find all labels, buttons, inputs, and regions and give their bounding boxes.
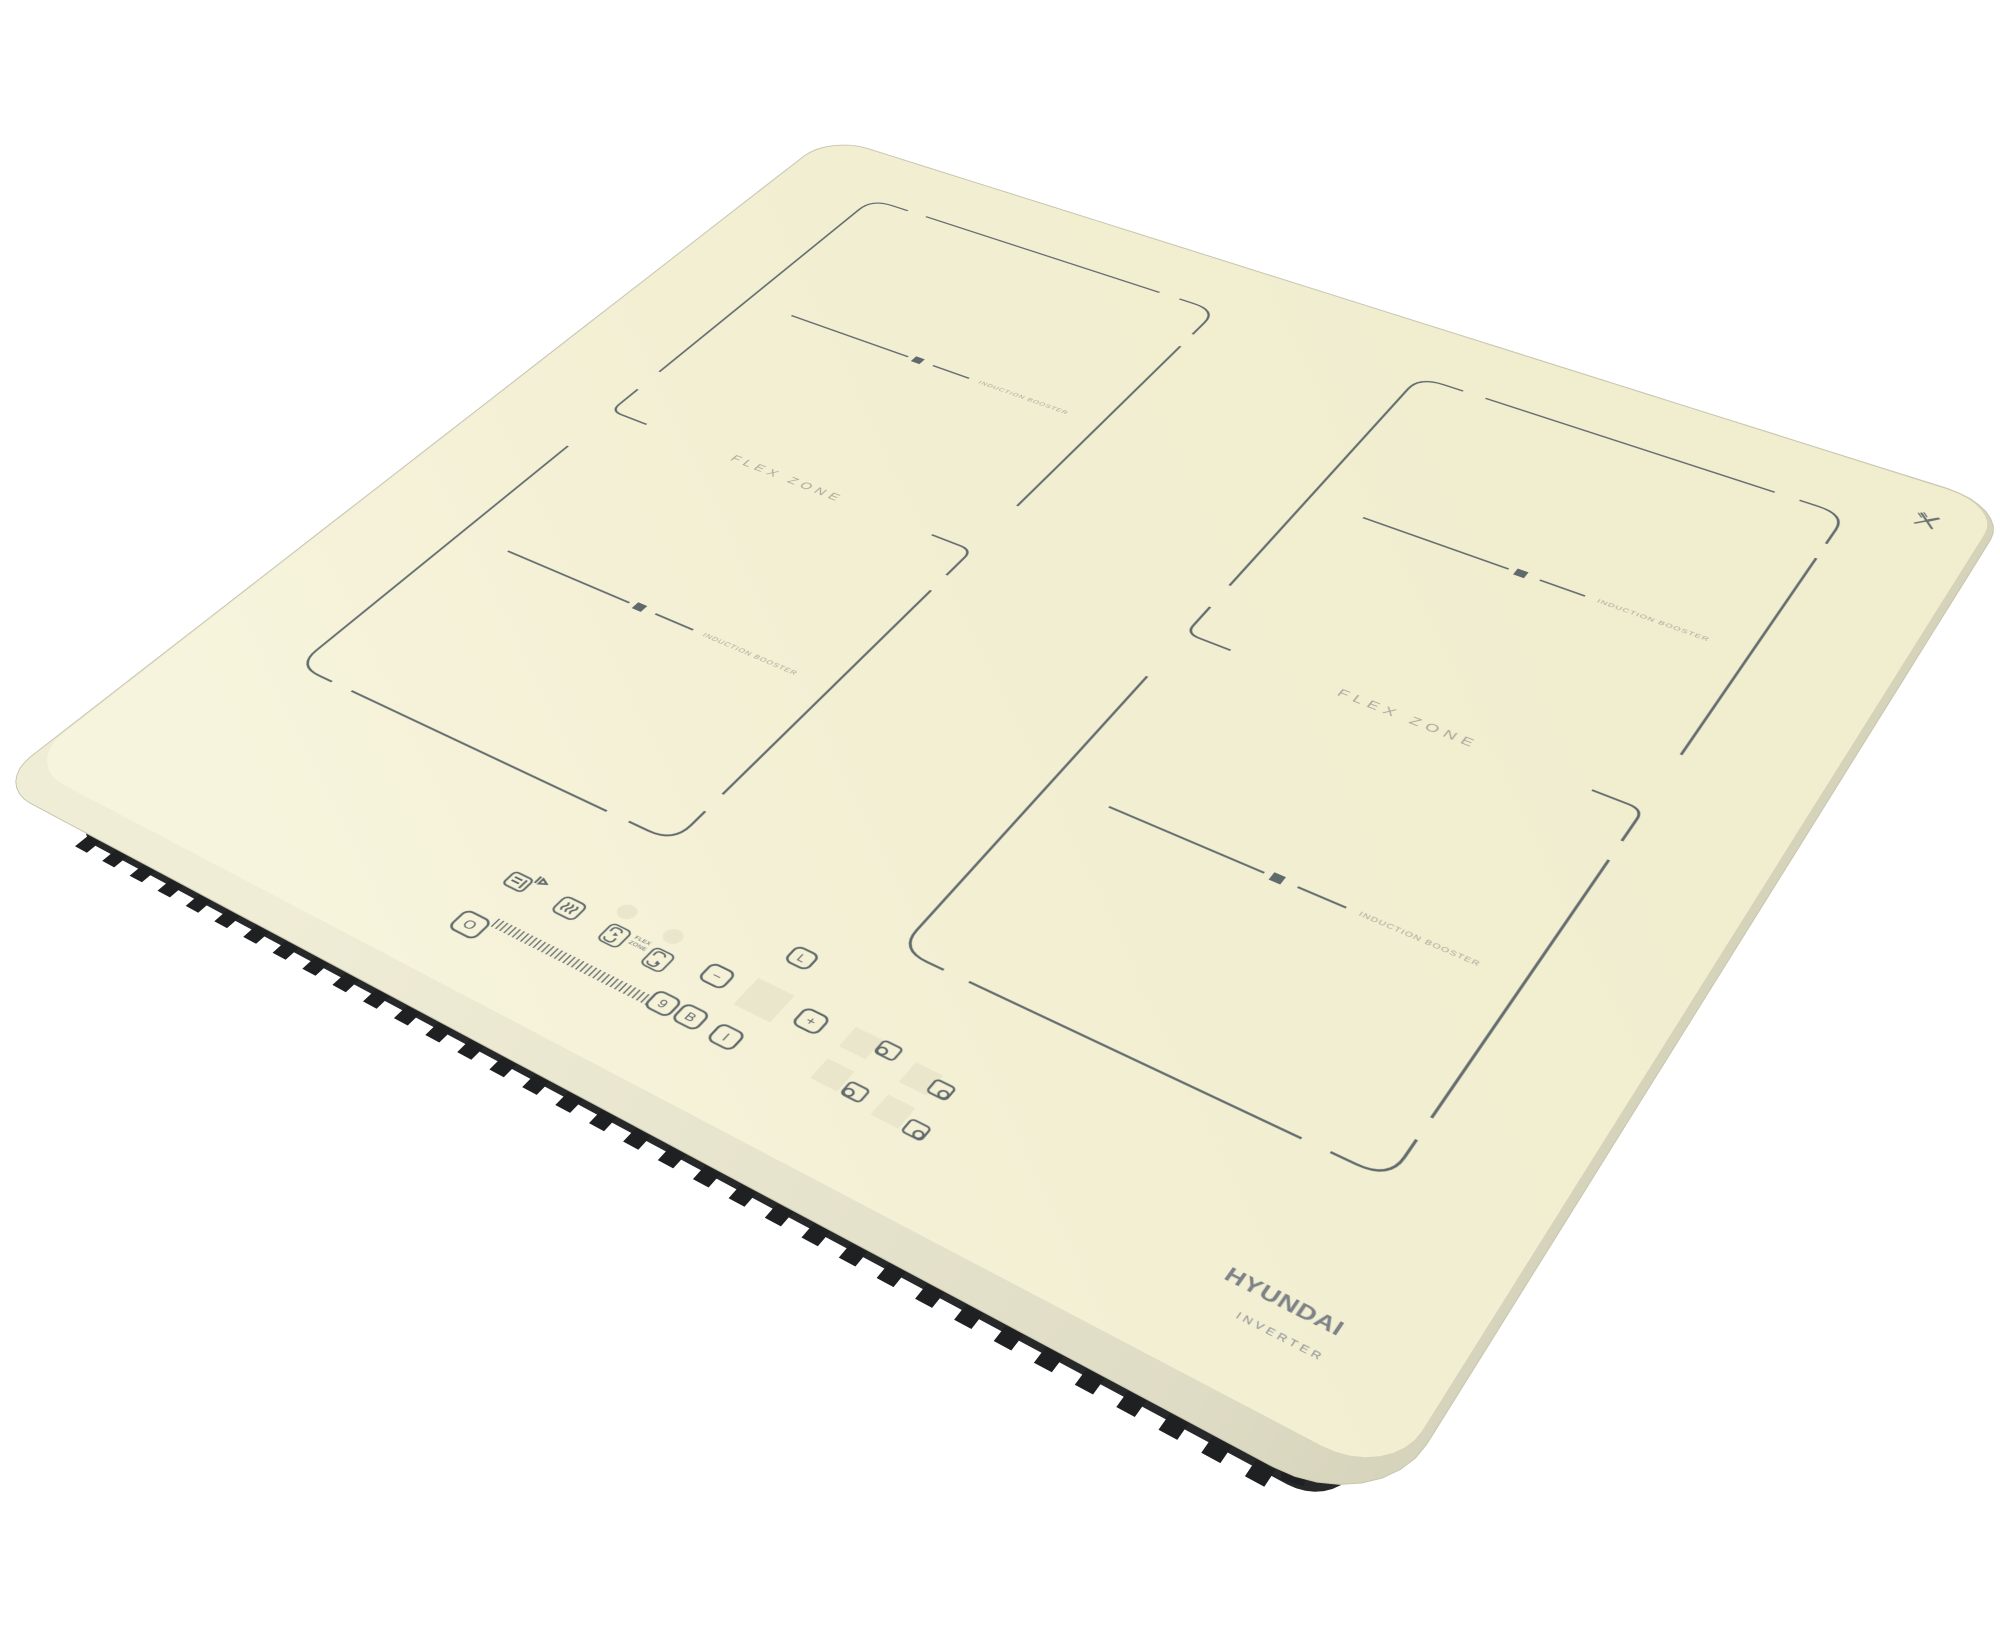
svg-text:HYUNDAI: HYUNDAI	[1220, 1262, 1350, 1341]
svg-text:INDUCTION BOOSTER: INDUCTION BOOSTER	[1595, 599, 1711, 644]
svg-text:I: I	[719, 1030, 733, 1043]
svg-text:+: +	[802, 1014, 820, 1029]
svg-text:FLEX ZONE: FLEX ZONE	[727, 454, 847, 505]
svg-text:L: L	[794, 952, 811, 965]
svg-text:FLEX ZONE: FLEX ZONE	[1334, 688, 1482, 752]
svg-text:INDUCTION BOOSTER: INDUCTION BOOSTER	[1357, 911, 1482, 969]
svg-text:−: −	[708, 969, 726, 984]
svg-text:O: O	[459, 917, 480, 933]
svg-text:9: 9	[654, 996, 672, 1011]
svg-text:INDUCTION BOOSTER: INDUCTION BOOSTER	[976, 380, 1069, 416]
svg-text:INDUCTION BOOSTER: INDUCTION BOOSTER	[700, 632, 799, 677]
svg-text:B: B	[681, 1009, 701, 1025]
